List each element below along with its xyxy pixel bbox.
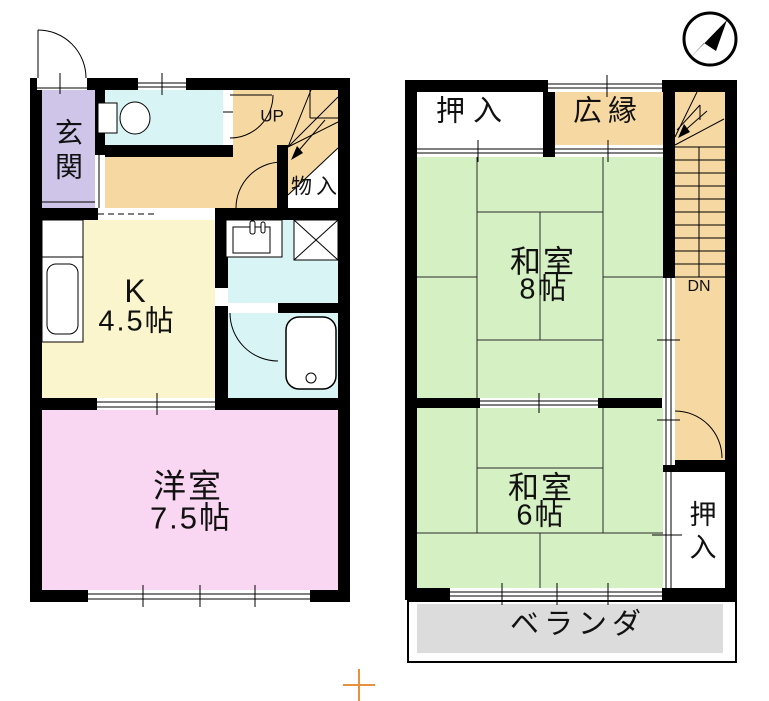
wall-1f-bottom (30, 590, 350, 602)
wall-1f-top (30, 78, 350, 90)
toilet-room (105, 90, 223, 145)
wall-1f-right (338, 78, 350, 602)
bathroom (228, 313, 338, 398)
entrance-label: 玄関 (53, 118, 81, 186)
sunroom-label: 広縁 (573, 98, 643, 127)
wall-stair-2f (663, 80, 675, 283)
tatami6-size-label: 6帖 (516, 502, 565, 531)
wall-wash-bath (215, 303, 338, 313)
wall-hall-closet-2f (663, 460, 725, 472)
wall-tatami-divider (417, 398, 662, 408)
wall-2f-bottom (405, 588, 737, 600)
wall-stair-divider-1f (277, 145, 288, 208)
kitchen-name-label: K (124, 275, 147, 307)
cross-mark (343, 669, 375, 701)
western-room-size-label: 7.5帖 (150, 503, 232, 534)
wall-2f-top (405, 80, 737, 92)
hallway-1f (105, 157, 233, 208)
wall-kitchen-bottom (30, 398, 350, 410)
wall-toilet-bottom (95, 145, 233, 157)
dn-label: DN (687, 279, 710, 295)
wall-bath-left (215, 313, 228, 398)
entry-door-arc (38, 30, 86, 78)
tatami8-size-label: 8帖 (519, 276, 568, 305)
storage-label: 物入 (291, 177, 341, 198)
wall-hall-kitchen-left (30, 208, 98, 220)
floor-plan: 玄関 UP 物入 K 4.5帖 洋室 7.5帖 押入 広縁 和室 8帖 DN 和… (0, 0, 769, 701)
wall-closet-sunroom (543, 80, 555, 157)
wall-1f-left (30, 78, 42, 602)
up-label: UP (260, 108, 284, 125)
kitchen-size-label: 4.5帖 (98, 308, 175, 337)
wall-washroom-left (215, 220, 228, 288)
washroom (228, 220, 338, 303)
closet-side-label: 押入 (687, 500, 714, 566)
wall-2f-left (405, 80, 417, 600)
western-room-name-label: 洋室 (153, 470, 223, 503)
compass-icon (684, 13, 736, 65)
wall-washroom-top (215, 208, 338, 220)
staircase-2f (675, 92, 725, 460)
wall-2f-right (725, 80, 737, 600)
balcony-label: ベランダ (510, 611, 646, 640)
closet-top-label: 押入 (436, 98, 510, 127)
